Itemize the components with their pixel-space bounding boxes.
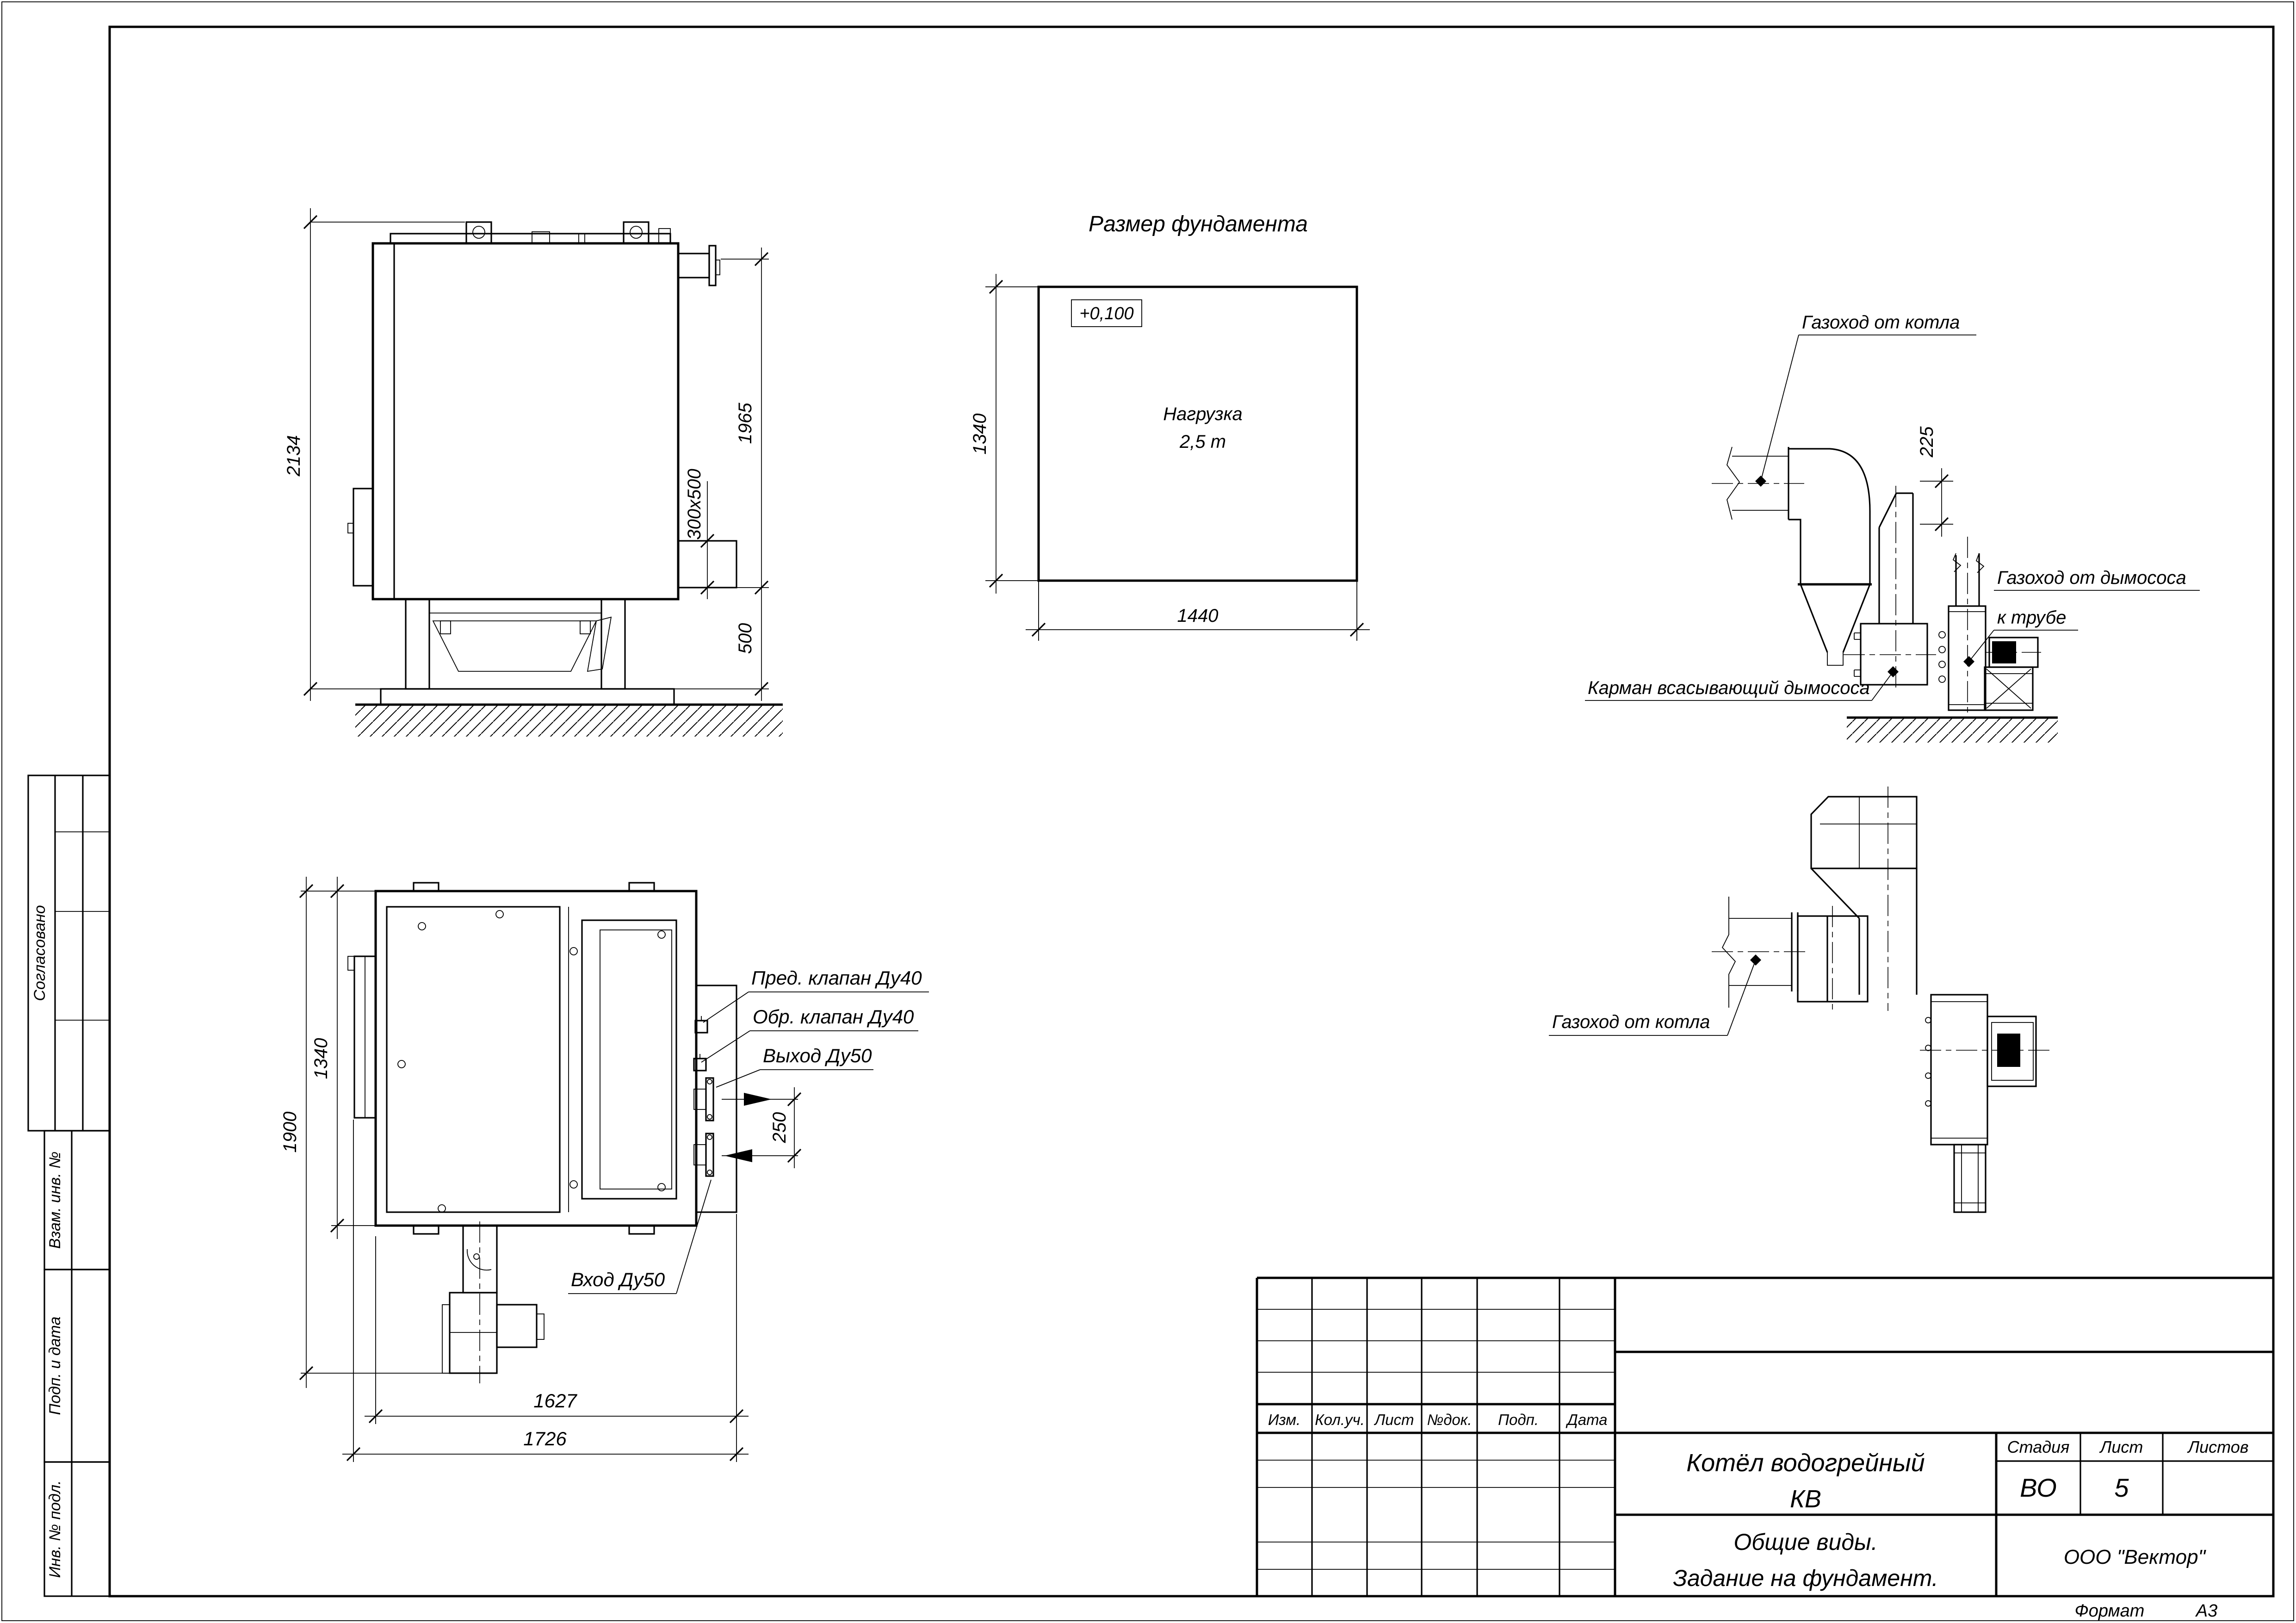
flue-dim-offset: 225 xyxy=(1917,426,1937,458)
dim-nozzle-spacing: 250 xyxy=(769,1112,790,1144)
title-block: Изм. Кол.уч. Лист №док. Подп. Дата Котёл… xyxy=(1257,1278,2273,1621)
safety-valve-label: Пред. клапан Ду40 xyxy=(751,967,922,989)
doc-title-line1: Котёл водогрейный xyxy=(1686,1449,1925,1477)
sheet-title-line1: Общие виды. xyxy=(1733,1529,1877,1555)
sheet-title-line2: Задание на фундамент. xyxy=(1673,1565,1938,1591)
foundation-load-line1: Нагрузка xyxy=(1163,404,1243,424)
drawing-sheet: Согласовано Взам. инв. № Подп. и дата Ин… xyxy=(0,0,2296,1623)
view-boiler-plan: 250 Пред. клапан Ду40 Обр. клапан Ду40 В… xyxy=(280,877,929,1462)
dim-foundation-width: 1440 xyxy=(1177,606,1219,626)
outlet-flow-arrow xyxy=(744,1093,772,1106)
inlet-label: Вход Ду50 xyxy=(571,1269,665,1290)
th-izm: Изм. xyxy=(1268,1411,1300,1428)
foundation-load-line2: 2,5 т xyxy=(1179,432,1226,452)
sheet-label: Лист xyxy=(2099,1437,2143,1456)
sheets-label: Листов xyxy=(2187,1437,2248,1456)
th-list: Лист xyxy=(1374,1411,1414,1428)
company-name: ООО "Вектор" xyxy=(2064,1546,2207,1568)
ground-hatch xyxy=(1847,718,2058,743)
dim-support-height: 500 xyxy=(735,623,755,654)
th-koluch: Кол.уч. xyxy=(1315,1411,1365,1428)
th-ndok: №док. xyxy=(1427,1411,1472,1428)
doc-title-line2: КВ xyxy=(1790,1485,1821,1513)
th-podp: Подп. xyxy=(1498,1411,1539,1428)
drawing-canvas: Согласовано Взам. инв. № Подп. и дата Ин… xyxy=(0,0,2296,1623)
leader-marker xyxy=(1963,656,1974,667)
format-value: А3 xyxy=(2195,1601,2217,1621)
stage-value: ВО xyxy=(2020,1473,2057,1502)
paper-edge xyxy=(2,2,2294,1621)
dim-overall-length: 1726 xyxy=(523,1428,567,1450)
flue-boiler-duct-label: Газоход от котла xyxy=(1802,312,1960,333)
flue-pocket-label: Карман всасывающий дымососа xyxy=(1588,678,1870,698)
view-foundation-plan: Размер фундамента +0,100 Нагрузка 2,5 т … xyxy=(970,212,1370,641)
sheet-value: 5 xyxy=(2114,1473,2129,1502)
view-boiler-side: 2134 300х500 1965 500 xyxy=(284,208,783,737)
dim-body-width: 1340 xyxy=(311,1038,331,1079)
th-data: Дата xyxy=(1565,1411,1607,1428)
dim-duct-section: 300х500 xyxy=(684,469,705,539)
view-flue-side: Газоход от котла 225 Газоход от дымососа… xyxy=(1585,312,2200,743)
foundation-elevation: +0,100 xyxy=(1079,304,1133,323)
dim-foundation-depth: 1340 xyxy=(970,414,990,455)
outlet-label: Выход Ду50 xyxy=(763,1045,872,1066)
replace-inv-label: Взам. инв. № xyxy=(46,1152,64,1249)
flue-fan-duct-label-line1: Газоход от дымососа xyxy=(1997,568,2186,588)
inlet-flow-arrow xyxy=(724,1149,752,1162)
flue-fan-duct-label-line2: к трубе xyxy=(1997,607,2066,628)
check-valve-label: Обр. клапан Ду40 xyxy=(753,1006,914,1028)
sign-date-label: Подп. и дата xyxy=(46,1317,64,1415)
dim-body-length: 1627 xyxy=(533,1390,577,1412)
drawing-frame xyxy=(110,27,2273,1596)
leader-marker xyxy=(1888,666,1899,677)
ground-hatch xyxy=(355,705,783,737)
dim-overall-height: 2134 xyxy=(284,435,304,477)
stage-label: Стадия xyxy=(2007,1437,2070,1456)
approved-label: Согласовано xyxy=(31,905,49,1001)
view-flue-plan: Газоход от котла xyxy=(1549,787,2049,1212)
foundation-title: Размер фундамента xyxy=(1089,212,1308,236)
leader-marker xyxy=(1750,954,1761,966)
dim-flange-height: 1965 xyxy=(735,403,755,444)
dim-overall-width: 1900 xyxy=(280,1112,300,1153)
leader-marker xyxy=(1755,476,1766,487)
left-margin-stamps: Согласовано Взам. инв. № Подп. и дата Ин… xyxy=(28,775,110,1596)
flueplan-boiler-duct-label: Газоход от котла xyxy=(1552,1012,1710,1032)
format-label: Формат xyxy=(2075,1601,2145,1621)
inv-orig-label: Инв. № подл. xyxy=(46,1481,64,1578)
